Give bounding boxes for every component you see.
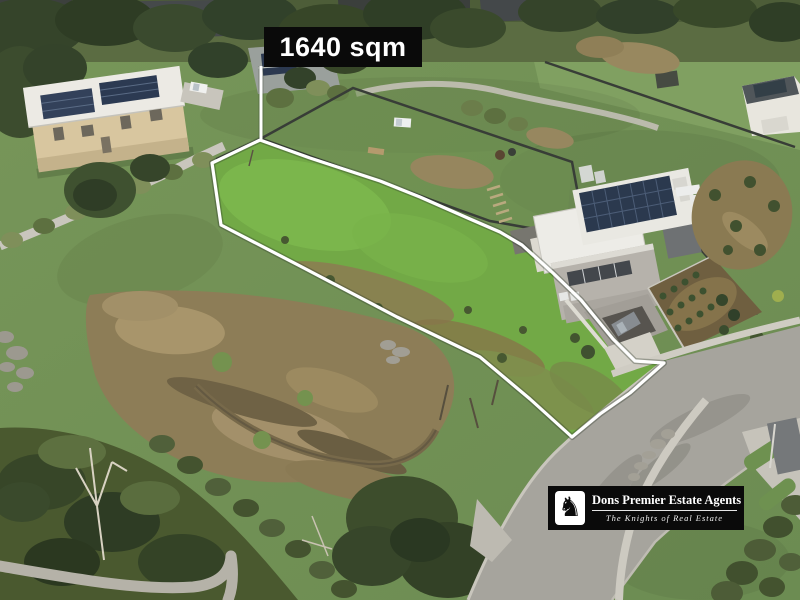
area-label: 1640 sqm	[264, 27, 422, 67]
agency-name: Dons Premier Estate Agents	[592, 493, 737, 511]
agency-logo-text: Dons Premier Estate Agents The Knights o…	[592, 493, 737, 523]
listing-photo: 1640 sqm ♞ Dons Premier Estate Agents Th…	[0, 0, 800, 600]
agency-tagline: The Knights of Real Estate	[592, 513, 737, 523]
agency-logo: ♞ Dons Premier Estate Agents The Knights…	[548, 486, 744, 530]
area-label-text: 1640 sqm	[279, 32, 406, 63]
chess-knight-icon: ♞	[555, 491, 585, 525]
knight-glyph: ♞	[558, 493, 582, 523]
yellow-sapling	[772, 290, 784, 302]
